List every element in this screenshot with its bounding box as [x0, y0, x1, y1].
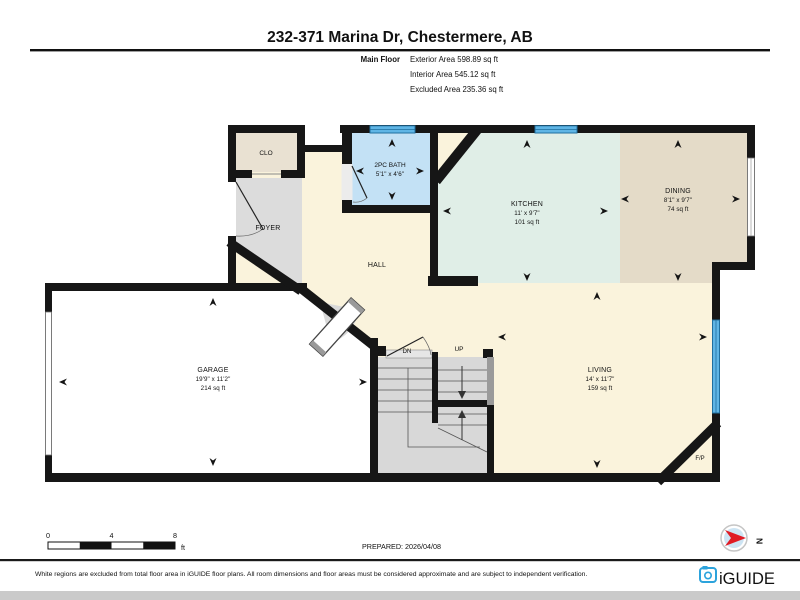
garage-dims: 19'9" x 11'2"	[196, 376, 231, 383]
page-bottom-edge	[0, 591, 800, 600]
floor-label: Main Floor	[361, 55, 400, 64]
scale-unit: ft	[181, 543, 185, 552]
interior-area-text: Interior Area 545.12 sq ft	[410, 70, 496, 79]
fireplace-label: F/P	[695, 456, 704, 462]
dining-window	[748, 158, 755, 236]
iguide-logo: iGUIDE	[700, 566, 775, 588]
exterior-area-text: Exterior Area 598.89 sq ft	[410, 55, 499, 64]
stairs-up-label: UP	[454, 346, 463, 353]
bath-dims: 5'1" x 4'6"	[376, 171, 404, 178]
header-divider	[30, 49, 770, 51]
scale-tick-4: 4	[110, 531, 114, 540]
footer-divider	[0, 559, 800, 561]
hall-label: HALL	[368, 262, 386, 269]
stairs-down-label: DN	[403, 349, 412, 355]
brand-name: iGUIDE	[719, 570, 775, 588]
living-dims: 14' x 11'7"	[586, 376, 615, 383]
room-kitchen	[438, 133, 620, 283]
garage-label: GARAGE	[197, 367, 228, 374]
kitchen-area: 101 sq ft	[515, 219, 540, 226]
kitchen-dims: 11' x 9'7"	[514, 210, 539, 217]
closet-label: CLO	[259, 150, 272, 157]
compass-icon: N	[721, 525, 765, 551]
floorplan-canvas: 232-371 Marina Dr, Chestermere, AB Main …	[0, 0, 800, 600]
stair-pony-wall	[487, 357, 494, 405]
dining-label: DINING	[665, 188, 691, 195]
bath-label: 2PC BATH	[374, 162, 406, 169]
scale-bar: 0 4 8 ft	[46, 531, 185, 552]
scale-tick-0: 0	[46, 531, 50, 540]
page-title: 232-371 Marina Dr, Chestermere, AB	[267, 29, 533, 46]
kitchen-window	[535, 126, 577, 133]
dining-dims: 8'1" x 9'7"	[664, 197, 692, 204]
camera-lens-icon	[705, 572, 711, 578]
living-label: LIVING	[588, 367, 612, 374]
garage-door	[46, 312, 52, 455]
bath-window	[370, 126, 415, 133]
scale-tick-8: 8	[173, 531, 177, 540]
compass-north-letter: N	[755, 538, 765, 544]
floorplan-page: 232-371 Marina Dr, Chestermere, AB Main …	[0, 0, 800, 600]
dining-area: 74 sq ft	[667, 206, 688, 213]
garage-area: 214 sq ft	[201, 385, 226, 392]
disclaimer-text: White regions are excluded from total fl…	[35, 571, 587, 578]
living-window	[713, 320, 720, 413]
foyer-label: FOYER	[255, 225, 280, 232]
prepared-date: PREPARED: 2026/04/08	[362, 542, 441, 551]
excluded-area-text: Excluded Area 235.36 sq ft	[410, 85, 504, 94]
kitchen-label: KITCHEN	[511, 201, 543, 208]
camera-icon	[700, 568, 716, 582]
living-area: 159 sq ft	[588, 385, 613, 392]
